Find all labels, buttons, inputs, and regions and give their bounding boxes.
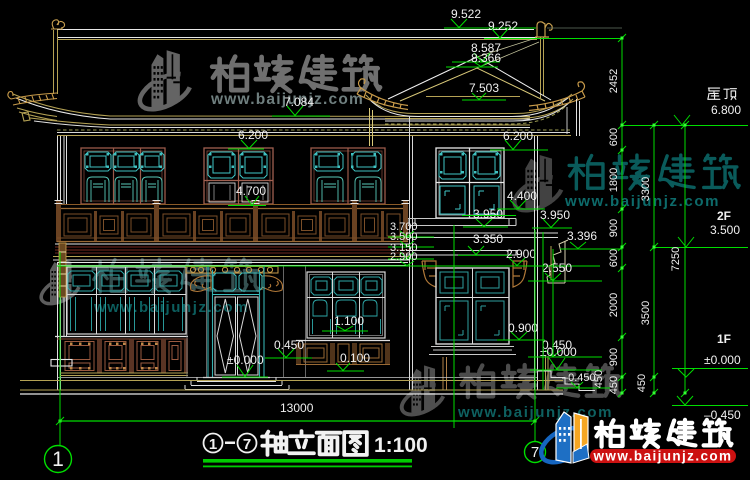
svg-text:450: 450 [636, 374, 648, 392]
svg-text:4.400: 4.400 [507, 189, 537, 203]
svg-text:6.200: 6.200 [503, 129, 533, 143]
svg-text:±0.000: ±0.000 [227, 353, 264, 367]
svg-text:3.950: 3.950 [540, 208, 570, 222]
svg-text:600: 600 [608, 249, 620, 267]
svg-text:2.550: 2.550 [542, 261, 572, 275]
svg-text:±0.000: ±0.000 [540, 345, 577, 359]
svg-text:1: 1 [209, 436, 217, 453]
svg-text:7.084: 7.084 [284, 95, 314, 109]
svg-text:3300: 3300 [640, 177, 652, 201]
svg-text:–0.450: –0.450 [562, 372, 596, 384]
svg-text:3.350: 3.350 [473, 232, 503, 246]
svg-text:450: 450 [593, 370, 605, 388]
svg-text:0.100: 0.100 [340, 351, 370, 365]
svg-text:4.700: 4.700 [236, 184, 266, 198]
svg-text:–0.450: –0.450 [704, 408, 741, 422]
svg-text:2F: 2F [717, 209, 731, 223]
svg-text:1.100: 1.100 [334, 314, 364, 328]
svg-text:900: 900 [608, 348, 620, 366]
svg-text:6.800: 6.800 [711, 103, 741, 117]
svg-text:2452: 2452 [608, 69, 620, 93]
svg-text:600: 600 [608, 128, 620, 146]
svg-text:1: 1 [52, 448, 64, 471]
svg-text:3500: 3500 [640, 301, 652, 325]
svg-text:3.396: 3.396 [567, 229, 597, 243]
svg-text:7: 7 [243, 436, 251, 453]
svg-text:1:100: 1:100 [374, 434, 428, 457]
svg-text:7.503: 7.503 [469, 81, 499, 95]
svg-text:450: 450 [608, 376, 620, 394]
svg-text:900: 900 [608, 219, 620, 237]
svg-text:3.500: 3.500 [710, 223, 740, 237]
svg-text:13000: 13000 [280, 401, 314, 415]
svg-text:1800: 1800 [608, 168, 620, 192]
svg-text:6.200: 6.200 [238, 128, 268, 142]
svg-text:3.950: 3.950 [473, 207, 503, 221]
svg-text:9.252: 9.252 [488, 19, 518, 33]
svg-text:7: 7 [531, 444, 539, 461]
svg-text:1F: 1F [717, 332, 731, 346]
svg-text:±0.000: ±0.000 [704, 353, 741, 367]
svg-text:9.522: 9.522 [451, 7, 481, 21]
svg-text:7250: 7250 [670, 247, 682, 271]
svg-text:2000: 2000 [608, 293, 620, 317]
svg-text:www.baijunjz.com: www.baijunjz.com [593, 449, 733, 464]
